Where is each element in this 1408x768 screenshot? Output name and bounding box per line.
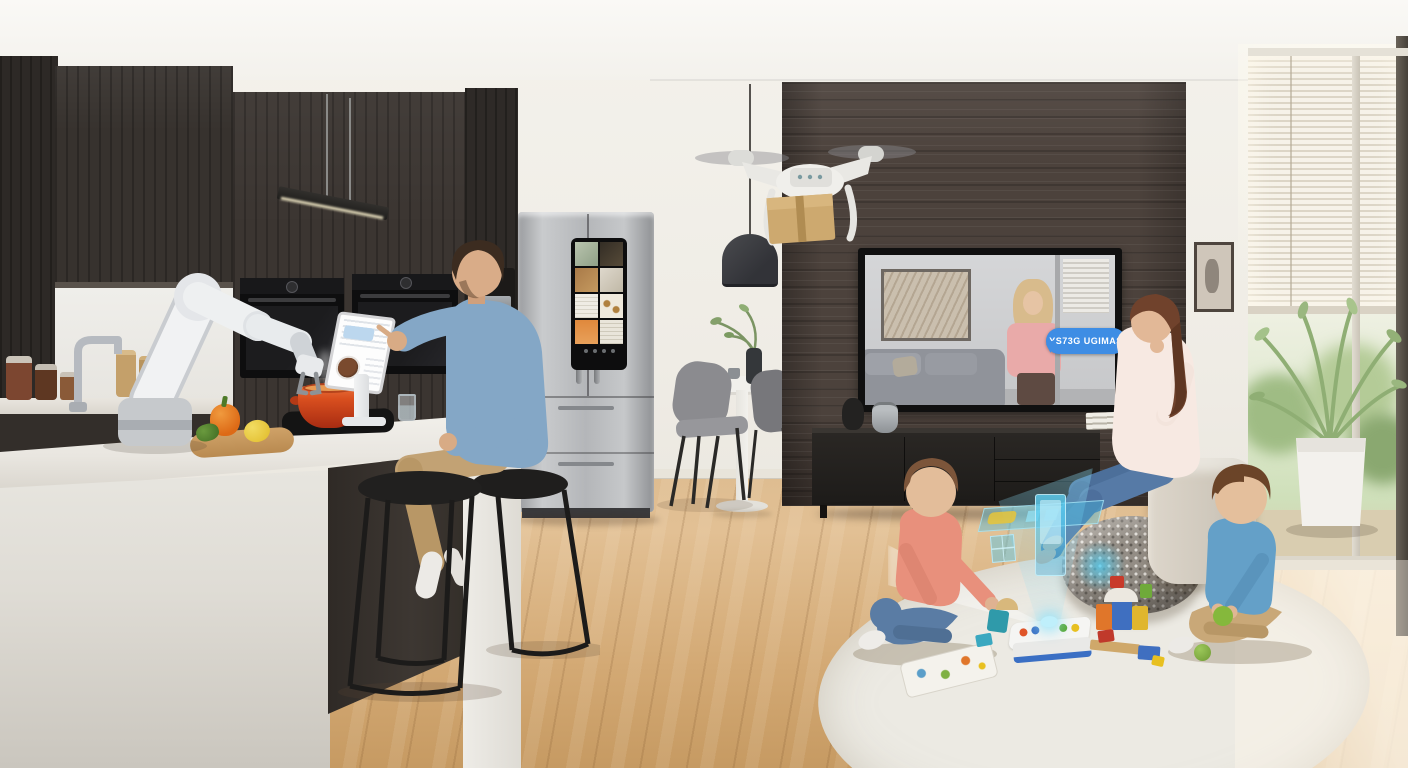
green-ball [1194,644,1211,661]
green-toy-ball [1213,606,1233,626]
man-hand [439,433,457,451]
dining-chairs [650,350,800,530]
block-house-blue [1112,598,1132,630]
pendant-rod [326,94,328,198]
boy1-head [906,467,956,517]
tv-couch [865,349,1005,405]
man-sock [452,556,462,578]
cardboard-package [766,194,835,244]
man-finger [379,327,391,336]
boy2-arm [1216,560,1222,604]
block-red [1097,629,1115,643]
hologram-panel [1035,494,1066,576]
toy-block [987,609,1010,634]
man-resting-arm [456,430,520,444]
block-house-orange [1096,604,1112,630]
chair-legs [671,428,744,508]
screen-food-tile [600,242,623,266]
tv-couch-cushion [925,353,977,375]
hologram-panel-screen [1040,500,1061,544]
woman-forearm [1159,354,1166,414]
screen-memo-tile [600,320,623,344]
tv-couch-pillow [892,355,918,377]
dock-dot-icon [602,349,606,353]
blind-cord [1290,56,1292,308]
robot-gripper-fingers [299,374,319,393]
robot-gripper [294,353,325,379]
screen-food-tile [600,268,623,292]
block-house-yellow [1132,606,1148,630]
window-top-frame [1248,48,1408,56]
dock-dot-icon [611,349,615,353]
smart-speaker [872,402,898,433]
decor-vase [842,398,864,430]
pendant-rod [349,98,351,212]
block-red-cube [1110,576,1124,588]
boy-salmon-shirt [850,440,1020,690]
stool-legs [498,490,588,654]
screen-cookies-tile [600,294,623,318]
man-sock [426,562,432,588]
block-green [1140,584,1152,598]
block-yellow [1151,655,1165,667]
man-and-stools [330,240,600,710]
boy-blue-shirt [1160,450,1330,690]
stool-seat [358,471,482,505]
island-front-panel [0,470,330,768]
tv-art-frame [881,269,971,341]
block-arch-white [1104,588,1138,602]
smart-home-scene: YS73G UGIMAS [0,0,1408,768]
drone-motor-pod [728,150,754,166]
delivery-drone [690,115,920,260]
